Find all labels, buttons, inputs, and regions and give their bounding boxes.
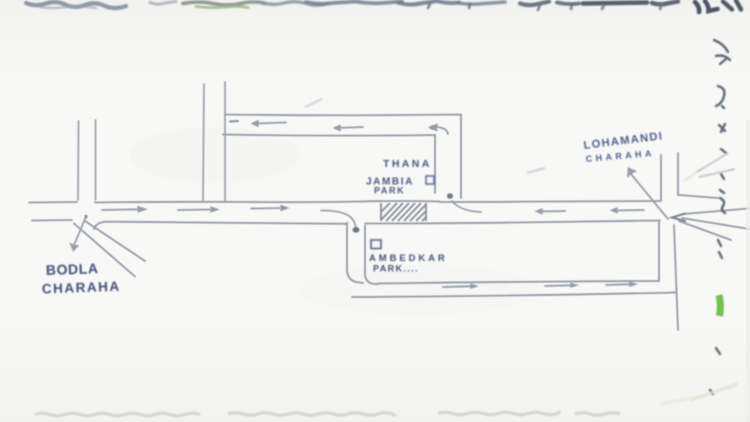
svg-text:BODLA: BODLA <box>46 260 99 278</box>
svg-text:AMBEDKAR: AMBEDKAR <box>369 253 448 264</box>
svg-text:CHARAHA: CHARAHA <box>42 279 121 297</box>
svg-text:PARK: PARK <box>374 186 405 196</box>
svg-text:PARK....: PARK.... <box>373 264 419 274</box>
svg-text:THANA: THANA <box>383 158 432 170</box>
